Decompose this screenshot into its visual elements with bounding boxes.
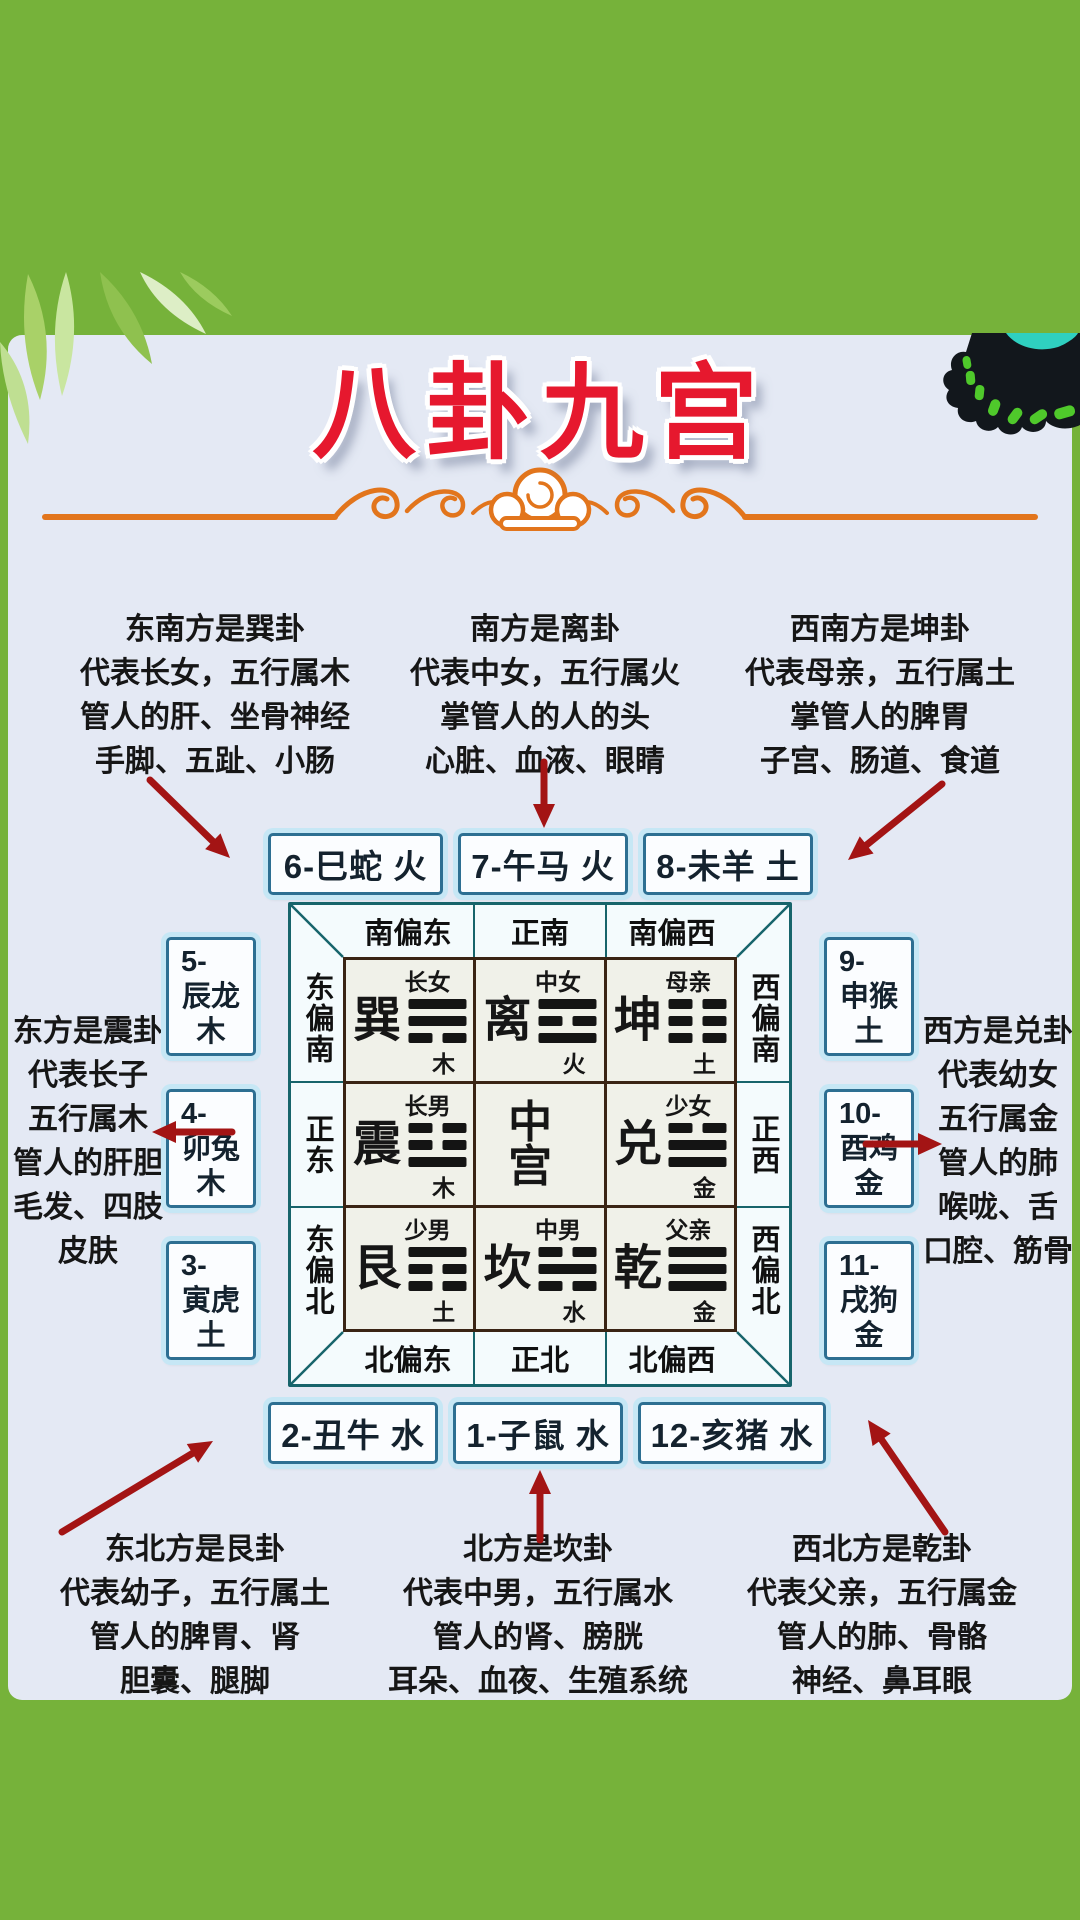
bagua-poster: 八卦九宫 东南方是巽卦代表长女，五行属木管人的肝、坐骨神经手脚、五趾、小肠 南方… xyxy=(0,0,1080,1920)
direction-label: 正东 xyxy=(291,1081,343,1207)
text-line: 5- xyxy=(175,945,247,980)
text-line: 代表长子 xyxy=(5,1054,171,1098)
text-line: 土 xyxy=(833,1015,905,1050)
zodiac-box-goat: 8-未羊 土 xyxy=(643,833,813,895)
trigram-line-solid xyxy=(669,1247,727,1257)
trigram-line-solid xyxy=(408,999,466,1009)
text-line: 代表幼子，五行属土 xyxy=(5,1572,385,1616)
text-line: 胆囊、腿脚 xyxy=(5,1660,385,1704)
bagua-cell-xun: 长女 巽 木 xyxy=(346,960,473,1081)
info-block-north: 北方是坎卦代表中男，五行属水管人的肾、膀胱耳朵、血夜、生殖系统 xyxy=(348,1528,728,1704)
direction-label: 东偏南 xyxy=(291,957,343,1081)
trigram-name: 艮 xyxy=(353,1245,401,1293)
direction-strip-west: 西偏南 正西 西偏北 xyxy=(737,957,789,1332)
trigram-line-broken xyxy=(538,1281,596,1291)
direction-label: 北偏东 xyxy=(343,1332,473,1384)
text-line: 管人的肝胆 xyxy=(5,1142,171,1186)
zodiac-box-horse: 7-午马 火 xyxy=(458,833,628,895)
trigram-name: 巽 xyxy=(353,997,401,1045)
text-line: 掌管人的脾胃 xyxy=(688,696,1072,740)
trigram-line-broken xyxy=(669,1033,727,1043)
trigram-symbol xyxy=(538,1247,596,1291)
bagua-cell-kan: 中男 坎 水 xyxy=(476,1208,603,1329)
text-line: 木 xyxy=(175,1167,247,1202)
text-line: 酉鸡 xyxy=(833,1132,905,1167)
info-block-south: 南方是离卦代表中女，五行属火掌管人的人的头心脏、血液、眼睛 xyxy=(360,608,730,784)
bagua-cell-gen: 少男 艮 土 xyxy=(346,1208,473,1329)
cell-element: 金 xyxy=(693,1293,716,1327)
info-block-east: 东方是震卦代表长子五行属木管人的肝胆毛发、四肢皮肤 xyxy=(5,1010,171,1274)
trigram-line-solid xyxy=(538,999,596,1009)
text-line: 子宫、肠道、食道 xyxy=(688,740,1072,784)
trigram-line-broken xyxy=(408,1033,466,1043)
direction-strip-south: 南偏东 正南 南偏西 xyxy=(343,905,737,957)
trigram-symbol xyxy=(408,999,466,1043)
direction-label: 西偏北 xyxy=(737,1206,789,1332)
bagua-inner-grid: 长女 巽 木 中女 离 火 母亲 坤 土 长男 震 木 中宫 xyxy=(343,957,737,1332)
cell-role: 少女 xyxy=(665,1087,711,1121)
text-line: 管人的脾胃、肾 xyxy=(5,1616,385,1660)
text-line: 管人的肾、膀胱 xyxy=(348,1616,728,1660)
text-line: 戌狗 xyxy=(833,1284,905,1319)
text-line: 10- xyxy=(833,1097,905,1132)
zodiac-row-bottom: 2-丑牛 水 1-子鼠 水 12-亥猪 水 xyxy=(268,1402,826,1464)
trigram-line-solid xyxy=(408,1157,466,1167)
trigram-line-broken xyxy=(408,1281,466,1291)
text-line: 五行属木 xyxy=(5,1098,171,1142)
text-line: 北方是坎卦 xyxy=(348,1528,728,1572)
text-line: 心脏、血液、眼睛 xyxy=(360,740,730,784)
butterfly-icon xyxy=(888,333,1080,445)
text-line: 代表中女，五行属火 xyxy=(360,652,730,696)
trigram-symbol xyxy=(669,1123,727,1167)
text-line: 代表母亲，五行属土 xyxy=(688,652,1072,696)
text-line: 神经、鼻耳眼 xyxy=(692,1660,1072,1704)
trigram-line-broken xyxy=(669,1123,727,1133)
text-line: 管人的肝、坐骨神经 xyxy=(35,696,395,740)
center-palace-label: 中宫 xyxy=(508,1101,572,1189)
cell-role: 中男 xyxy=(535,1211,581,1245)
text-line: 耳朵、血夜、生殖系统 xyxy=(348,1660,728,1704)
direction-label: 西偏南 xyxy=(737,957,789,1081)
trigram-name: 震 xyxy=(353,1121,401,1169)
trigram-name: 坤 xyxy=(614,997,662,1045)
text-line: 西南方是坤卦 xyxy=(688,608,1072,652)
text-line: 9- xyxy=(833,945,905,980)
text-line: 代表中男，五行属水 xyxy=(348,1572,728,1616)
zodiac-box-snake: 6-巳蛇 火 xyxy=(268,833,443,895)
zodiac-column-right: 9-申猴土 10-酉鸡金 11-戌狗金 xyxy=(824,937,914,1360)
info-block-southwest: 西南方是坤卦代表母亲，五行属土掌管人的脾胃子宫、肠道、食道 xyxy=(688,608,1072,784)
trigram-line-broken xyxy=(408,1264,466,1274)
text-line: 卯兔 xyxy=(175,1132,247,1167)
text-line: 口腔、筋骨 xyxy=(915,1230,1080,1274)
trigram-line-broken xyxy=(669,1016,727,1026)
direction-strip-north: 北偏东 正北 北偏西 xyxy=(343,1332,737,1384)
direction-label: 南偏西 xyxy=(605,905,737,957)
trigram-symbol xyxy=(669,999,727,1043)
trigram-line-solid xyxy=(669,1140,727,1150)
trigram-line-solid xyxy=(408,1247,466,1257)
text-line: 西方是兑卦 xyxy=(915,1010,1080,1054)
text-line: 管人的肺、骨骼 xyxy=(692,1616,1072,1660)
text-line: 东南方是巽卦 xyxy=(35,608,395,652)
trigram-line-broken xyxy=(408,1123,466,1133)
bagua-cell-center: 中宫 xyxy=(476,1084,603,1205)
cell-role: 长男 xyxy=(405,1087,451,1121)
trigram-line-solid xyxy=(669,1281,727,1291)
cell-element: 水 xyxy=(562,1293,585,1327)
cell-role: 中女 xyxy=(535,963,581,997)
bagua-cell-li: 中女 离 火 xyxy=(476,960,603,1081)
text-line: 南方是离卦 xyxy=(360,608,730,652)
text-line: 3- xyxy=(175,1249,247,1284)
trigram-name: 乾 xyxy=(614,1245,662,1293)
cell-element: 金 xyxy=(693,1169,716,1203)
text-line: 皮肤 xyxy=(5,1230,171,1274)
text-line: 东北方是艮卦 xyxy=(5,1528,385,1572)
bagua-cell-kun: 母亲 坤 土 xyxy=(607,960,734,1081)
cell-element: 木 xyxy=(432,1169,455,1203)
trigram-line-broken xyxy=(669,999,727,1009)
zodiac-box-pig: 12-亥猪 水 xyxy=(638,1402,826,1464)
text-line: 西北方是乾卦 xyxy=(692,1528,1072,1572)
zodiac-box-rat: 1-子鼠 水 xyxy=(453,1402,623,1464)
direction-label: 东偏北 xyxy=(291,1206,343,1332)
cell-element: 土 xyxy=(432,1293,455,1327)
trigram-line-broken xyxy=(538,1247,596,1257)
cell-role: 父亲 xyxy=(665,1211,711,1245)
direction-label: 北偏西 xyxy=(605,1332,737,1384)
direction-label: 正北 xyxy=(473,1332,605,1384)
trigram-line-solid xyxy=(669,1157,727,1167)
bagua-cell-zhen: 长男 震 木 xyxy=(346,1084,473,1205)
zodiac-column-left: 5-辰龙木 4-卯兔木 3-寅虎土 xyxy=(166,937,256,1360)
zodiac-box-tiger: 3-寅虎土 xyxy=(166,1241,256,1360)
text-line: 代表幼女 xyxy=(915,1054,1080,1098)
text-line: 手脚、五趾、小肠 xyxy=(35,740,395,784)
cell-role: 母亲 xyxy=(665,963,711,997)
zodiac-box-ox: 2-丑牛 水 xyxy=(268,1402,438,1464)
trigram-symbol xyxy=(538,999,596,1043)
bagua-grid: 南偏东 正南 南偏西 北偏东 正北 北偏西 东偏南 正东 东偏北 西偏南 正西 … xyxy=(288,902,792,1387)
cell-role: 长女 xyxy=(405,963,451,997)
text-line: 寅虎 xyxy=(175,1284,247,1319)
text-line: 毛发、四肢 xyxy=(5,1186,171,1230)
info-block-northeast: 东北方是艮卦代表幼子，五行属土管人的脾胃、肾胆囊、腿脚 xyxy=(5,1528,385,1704)
cell-element: 火 xyxy=(562,1045,585,1079)
trigram-name: 离 xyxy=(483,997,531,1045)
trigram-line-broken xyxy=(408,1140,466,1150)
trigram-name: 坎 xyxy=(483,1245,531,1293)
trigram-name: 兑 xyxy=(614,1121,662,1169)
text-line: 4- xyxy=(175,1097,247,1132)
text-line: 土 xyxy=(175,1319,247,1354)
info-block-northwest: 西北方是乾卦代表父亲，五行属金管人的肺、骨骼神经、鼻耳眼 xyxy=(692,1528,1072,1704)
text-line: 申猴 xyxy=(833,980,905,1015)
text-line: 东方是震卦 xyxy=(5,1010,171,1054)
cell-element: 土 xyxy=(693,1045,716,1079)
direction-strip-east: 东偏南 正东 东偏北 xyxy=(291,957,343,1332)
trigram-symbol xyxy=(408,1123,466,1167)
direction-label: 正西 xyxy=(737,1081,789,1207)
text-line: 代表长女，五行属木 xyxy=(35,652,395,696)
trigram-line-solid xyxy=(669,1264,727,1274)
text-line: 11- xyxy=(833,1249,905,1284)
info-block-west: 西方是兑卦代表幼女五行属金管人的肺喉咙、舌口腔、筋骨 xyxy=(915,1010,1080,1274)
text-line: 辰龙 xyxy=(175,980,247,1015)
direction-label: 南偏东 xyxy=(343,905,473,957)
text-line: 木 xyxy=(175,1015,247,1050)
text-line: 代表父亲，五行属金 xyxy=(692,1572,1072,1616)
text-line: 掌管人的人的头 xyxy=(360,696,730,740)
trigram-line-solid xyxy=(538,1033,596,1043)
trigram-line-solid xyxy=(538,1264,596,1274)
bagua-cell-dui: 少女 兑 金 xyxy=(607,1084,734,1205)
zodiac-box-rabbit: 4-卯兔木 xyxy=(166,1089,256,1208)
zodiac-box-monkey: 9-申猴土 xyxy=(824,937,914,1056)
trigram-symbol xyxy=(669,1247,727,1291)
bagua-cell-qian: 父亲 乾 金 xyxy=(607,1208,734,1329)
trigram-line-broken xyxy=(538,1016,596,1026)
direction-label: 正南 xyxy=(473,905,605,957)
text-line: 金 xyxy=(833,1167,905,1202)
text-line: 喉咙、舌 xyxy=(915,1186,1080,1230)
text-line: 管人的肺 xyxy=(915,1142,1080,1186)
zodiac-row-top: 6-巳蛇 火 7-午马 火 8-未羊 土 xyxy=(268,833,813,895)
bamboo-leaves-icon xyxy=(0,272,240,487)
cell-element: 木 xyxy=(432,1045,455,1079)
zodiac-box-rooster: 10-酉鸡金 xyxy=(824,1089,914,1208)
trigram-symbol xyxy=(408,1247,466,1291)
zodiac-box-dog: 11-戌狗金 xyxy=(824,1241,914,1360)
zodiac-box-dragon: 5-辰龙木 xyxy=(166,937,256,1056)
cell-role: 少男 xyxy=(405,1211,451,1245)
info-block-southeast: 东南方是巽卦代表长女，五行属木管人的肝、坐骨神经手脚、五趾、小肠 xyxy=(35,608,395,784)
trigram-line-solid xyxy=(408,1016,466,1026)
text-line: 金 xyxy=(833,1319,905,1354)
text-line: 五行属金 xyxy=(915,1098,1080,1142)
